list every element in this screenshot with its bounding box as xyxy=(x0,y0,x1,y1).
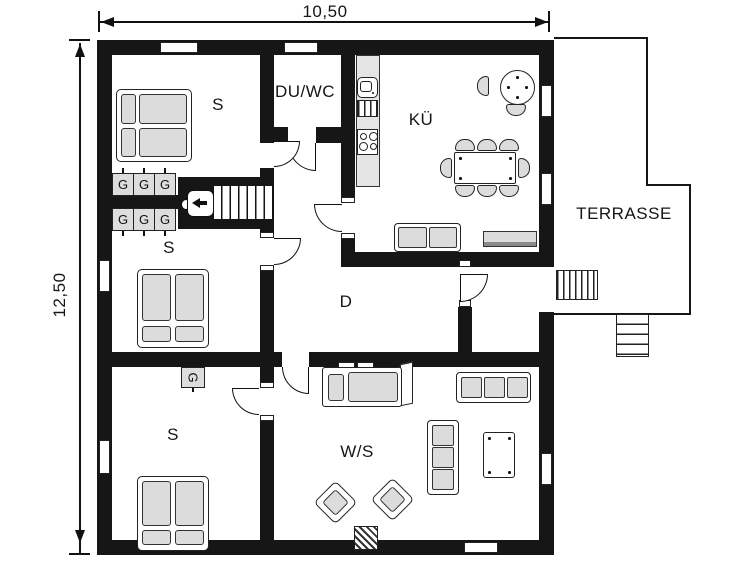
stove-burner xyxy=(370,143,377,150)
window xyxy=(541,453,552,485)
bed-pillow xyxy=(142,326,171,342)
bed-pillow xyxy=(175,530,204,545)
bed-mattress xyxy=(175,481,204,526)
staircase-treads xyxy=(214,186,273,219)
door-threshold xyxy=(260,415,274,421)
kitchen-sink-basin xyxy=(360,81,372,92)
armchair xyxy=(314,481,358,525)
dimension-tick xyxy=(69,39,90,41)
bed-pillow xyxy=(175,326,204,342)
bed-mattress xyxy=(142,274,171,321)
table-dot xyxy=(507,86,510,89)
kitchen-drainer xyxy=(357,100,378,117)
sink-drain-dot xyxy=(372,92,374,94)
room-label-hallway: D xyxy=(340,292,353,312)
terrace-edge xyxy=(646,37,648,186)
table-dot xyxy=(508,437,511,440)
chair xyxy=(477,139,497,151)
wardrobe-label: G xyxy=(160,212,170,227)
chair xyxy=(499,139,519,151)
chair xyxy=(455,185,475,197)
door-threshold xyxy=(260,232,274,238)
wardrobe-label: G xyxy=(118,212,128,227)
wall-segment xyxy=(341,55,355,203)
door-living-room xyxy=(282,367,309,394)
dimension-width-label: 10,50 xyxy=(302,2,347,22)
wardrobe-door-tick xyxy=(164,168,166,173)
table-dot xyxy=(509,157,512,160)
sofa-cushion xyxy=(484,377,505,398)
room-label-bedroom-top: S xyxy=(212,95,224,115)
room-label-kitchen: KÜ xyxy=(409,110,434,130)
dimension-arrow-left-icon xyxy=(101,17,114,27)
sofa-cushion xyxy=(398,227,427,248)
wardrobe: G xyxy=(112,173,134,196)
dimension-arrow-down-icon xyxy=(75,530,85,543)
wardrobe: G xyxy=(154,208,176,231)
wardrobe-label: G xyxy=(139,177,149,192)
wall-segment xyxy=(97,195,180,209)
door-threshold xyxy=(341,197,355,203)
wall-segment xyxy=(341,252,554,267)
wall-segment xyxy=(97,40,112,555)
wardrobe-door-tick xyxy=(164,231,166,236)
dimension-tick xyxy=(98,11,100,32)
sofa-bed-pillow xyxy=(328,374,344,401)
wardrobe-label: G xyxy=(118,177,128,192)
table-dot xyxy=(516,76,519,79)
chair xyxy=(518,158,530,178)
dimension-tick xyxy=(548,11,550,32)
window xyxy=(160,42,198,53)
window xyxy=(99,260,110,292)
wall-segment xyxy=(458,307,472,352)
sofa-cushion xyxy=(432,425,454,446)
chair xyxy=(440,158,452,178)
bed-mattress xyxy=(175,274,204,321)
table-dot xyxy=(516,96,519,99)
wall-segment xyxy=(539,312,554,555)
bed-pillow xyxy=(121,128,136,157)
terrace-edge xyxy=(689,184,691,315)
terrace-edge xyxy=(554,37,648,39)
wall-segment xyxy=(260,168,274,177)
wardrobe-door-tick xyxy=(143,231,145,236)
floor-plan: 10,50 12,50 S DU/WC KÜ TERRASSE S D S W/… xyxy=(0,0,755,566)
chair xyxy=(506,104,526,116)
door-kitchen xyxy=(314,204,342,232)
room-label-bedroom-middle: S xyxy=(163,238,175,258)
wardrobe-label: G xyxy=(160,177,170,192)
dining-table xyxy=(454,152,516,184)
kitchen-counter xyxy=(356,55,380,187)
door-threshold xyxy=(260,265,274,271)
window xyxy=(464,542,498,553)
table-dot xyxy=(488,437,491,440)
table-dot xyxy=(459,157,462,160)
chair xyxy=(455,139,475,151)
sofa-bed-mattress xyxy=(348,372,398,402)
wardrobe: G xyxy=(181,367,205,388)
door-bedroom-bottom xyxy=(232,388,259,415)
sofa-cushion xyxy=(432,469,454,490)
direction-arrow-stem xyxy=(199,201,207,205)
stove-burner xyxy=(359,142,368,151)
bed-mattress xyxy=(139,94,187,124)
table-dot xyxy=(525,86,528,89)
dimension-arrow-up-icon xyxy=(75,44,85,57)
wardrobe-door-tick xyxy=(143,168,145,173)
door-threshold xyxy=(260,382,274,388)
door-threshold xyxy=(341,233,355,239)
window xyxy=(541,173,552,205)
table-dot xyxy=(488,471,491,474)
armchair-cushion xyxy=(322,489,349,516)
terrace-edge xyxy=(646,184,691,186)
wardrobe: G xyxy=(133,173,155,196)
bed-mattress xyxy=(139,128,187,157)
sofa-cushion xyxy=(461,377,482,398)
sofa-cushion xyxy=(507,377,528,398)
window xyxy=(99,440,110,474)
sofa-cushion xyxy=(429,227,457,248)
wall-segment xyxy=(274,352,282,367)
armchair-cushion xyxy=(379,486,406,513)
table-dot xyxy=(459,177,462,180)
door-terrace-exit xyxy=(460,274,488,302)
stove-burner xyxy=(369,132,378,141)
wardrobe-door-tick xyxy=(122,168,124,173)
table-dot xyxy=(508,471,511,474)
dimension-line-left xyxy=(79,43,81,554)
table-dot xyxy=(509,177,512,180)
wardrobe-door-tick xyxy=(192,388,194,392)
room-label-shower-wc: DU/WC xyxy=(275,82,335,102)
bed-pillow xyxy=(121,94,136,124)
bed-pillow xyxy=(142,530,171,545)
wardrobe: G xyxy=(133,208,155,231)
wardrobe-door-tick xyxy=(122,231,124,236)
wardrobe: G xyxy=(154,173,176,196)
window xyxy=(541,85,552,117)
door-threshold xyxy=(459,260,471,267)
room-label-terrace: TERRASSE xyxy=(576,204,672,224)
entry-grate xyxy=(556,270,598,300)
fireplace-stove xyxy=(354,526,378,550)
room-label-bedroom-bottom: S xyxy=(167,425,179,445)
wall-segment xyxy=(260,265,274,352)
stove-burner xyxy=(360,133,367,140)
room-label-living-sleeping: W/S xyxy=(340,442,374,462)
wall-segment xyxy=(260,415,274,540)
bed-mattress xyxy=(142,481,171,526)
wardrobe-label: G xyxy=(139,212,149,227)
dimension-height-label: 12,50 xyxy=(50,272,70,317)
wall-segment xyxy=(97,352,274,367)
sofa-cushion xyxy=(432,447,454,468)
sideboard-front xyxy=(484,242,536,246)
chair xyxy=(477,185,497,197)
window xyxy=(284,42,318,53)
chair xyxy=(499,185,519,197)
dimension-arrow-right-icon xyxy=(535,17,548,27)
door-bedroom-middle xyxy=(274,238,301,265)
terrace-stairs xyxy=(616,314,649,357)
chair xyxy=(477,76,489,96)
wardrobe-label: G xyxy=(186,372,201,382)
wardrobe: G xyxy=(112,208,134,231)
dimension-tick xyxy=(69,553,90,555)
armchair xyxy=(371,478,415,522)
